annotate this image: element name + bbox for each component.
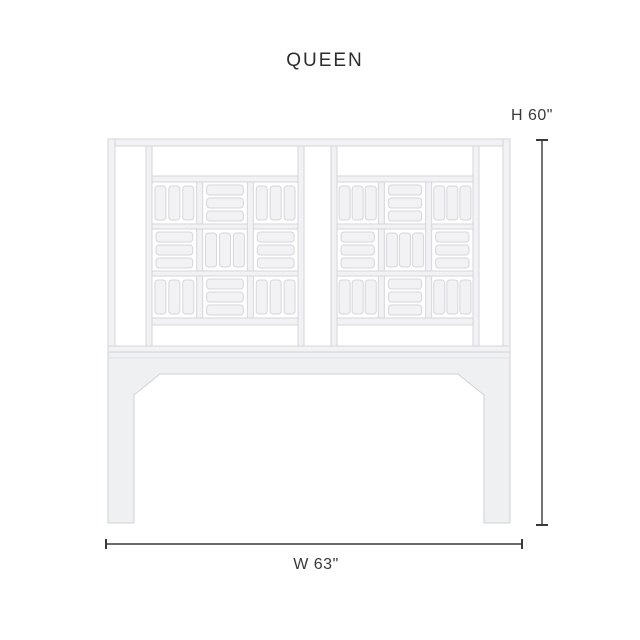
headboard-lattice-panels: [152, 182, 473, 318]
width-dimension-label: W 63": [266, 556, 366, 574]
headboard-base-and-legs: [108, 352, 510, 523]
height-dimension-label: H 60": [503, 107, 561, 125]
headboard-dimension-diagram: [0, 0, 640, 640]
